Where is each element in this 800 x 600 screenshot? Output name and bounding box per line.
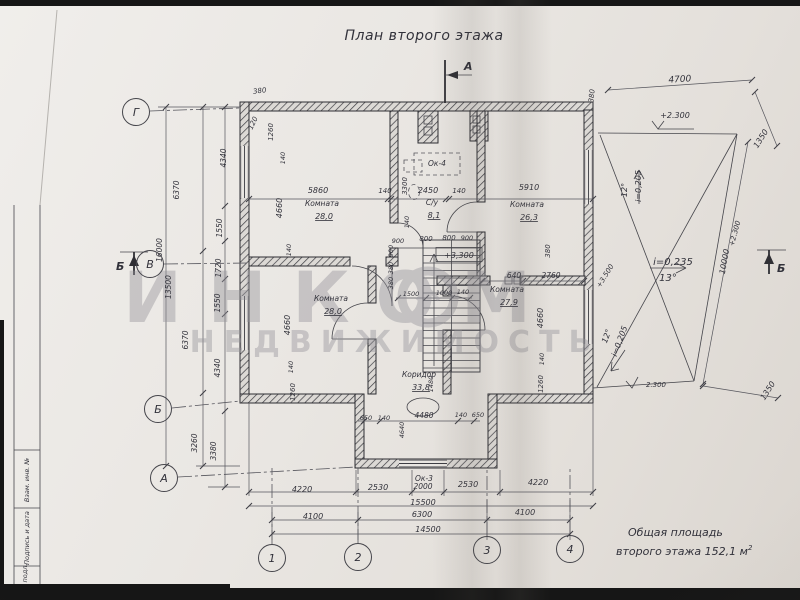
dimension-label: 4220 <box>292 485 312 494</box>
dimension-label: 6370 <box>181 330 190 349</box>
slope-label: i=0,205 <box>610 325 629 358</box>
titleblock-field-1: Взам. инв. № <box>23 458 31 502</box>
dimension-label: 380 <box>387 277 395 289</box>
dimension-label: 1350 <box>752 128 770 150</box>
room-name: Комната <box>490 285 524 294</box>
section-letter: Б <box>116 260 124 273</box>
dimension-label: 4480 <box>414 411 433 420</box>
window-mark-label: Ок-4 <box>428 159 446 168</box>
room-area: 28,0 <box>324 307 342 316</box>
dimension-label: 140 <box>378 187 392 195</box>
dimension-label: 140 <box>378 414 390 422</box>
dimension-label: 1500 <box>403 290 420 298</box>
dimension-label: 140 <box>452 187 466 195</box>
dimension-label: 4340 <box>219 148 228 167</box>
dimension-label: 380 <box>544 244 552 258</box>
dimension-label: 4100 <box>515 508 535 517</box>
dimension-label: 140 <box>403 216 411 228</box>
room-area: 8,1 <box>428 211 441 220</box>
dimension-label: 140 <box>279 152 287 164</box>
watermark: ИНКОМ НЕДВИЖИМОСТЬ <box>123 257 600 360</box>
dimension-label: 2000 <box>413 482 432 491</box>
dimension-label: 1550 <box>215 218 224 237</box>
room-name: Комната <box>314 294 348 303</box>
dimension-label: 380 <box>587 88 596 103</box>
dimension-label: 3380 <box>209 441 218 460</box>
dimension-label: 3260 <box>190 433 199 452</box>
dimension-label: 380 <box>387 262 395 274</box>
dimension-label: 1720 <box>214 258 223 277</box>
dimension-label: 2530 <box>458 480 478 489</box>
slope-label: 12° <box>620 183 629 197</box>
dimension-label: 900 <box>387 245 395 257</box>
dimension-label: 2760 <box>541 271 560 280</box>
dimension-label: 1260 <box>289 383 297 401</box>
dimension-label: 3300 <box>401 177 409 195</box>
room-name: С/у <box>426 198 439 207</box>
level-mark: +3.500 <box>595 262 616 289</box>
axis-bubble-label: Г <box>133 106 140 119</box>
dimension-label: 5860 <box>308 186 328 195</box>
slope-label: i=0,205 <box>634 170 643 202</box>
dimension-label: 15500 <box>410 498 435 507</box>
axis-bubble-label: 1 <box>269 552 276 565</box>
scanned-floor-plan-photo: ИНКОМ НЕДВИЖИМОСТЬ План второго этажа Об… <box>0 0 800 600</box>
level-mark: +3,300 <box>444 251 474 260</box>
room-name: Комната <box>305 199 339 208</box>
dimension-label: 4340 <box>213 358 222 377</box>
axis-bubble-label: 4 <box>567 543 574 556</box>
drawing-sheet: ИНКОМ НЕДВИЖИМОСТЬ План второго этажа Об… <box>0 0 800 600</box>
dimension-label: 1260 <box>267 123 275 141</box>
dimension-label: 4660 <box>536 308 545 328</box>
axis-bubble-label: 2 <box>355 551 362 564</box>
room-area: 27,9 <box>500 298 518 307</box>
level-mark: +2.300 <box>728 219 743 247</box>
axis-bubble-label: В <box>146 258 154 271</box>
dimension-label: 800 <box>419 235 433 243</box>
room-area: 33,8 <box>412 383 430 392</box>
dimension-line <box>745 139 751 145</box>
level-mark: +2.300 <box>660 111 690 120</box>
dimension-label: 2450 <box>418 186 438 195</box>
total-area-line1: Общая площадь <box>628 526 723 539</box>
axis-bubble-label: 3 <box>484 544 491 557</box>
axis-centerline <box>178 467 356 477</box>
dimension-label: 6300 <box>412 510 432 519</box>
titleblock-field-2: Подпись и дата <box>23 511 31 565</box>
dimension-label: 1000 <box>436 289 453 297</box>
axis-bubble-label: А <box>159 472 168 485</box>
dimension-label: 1550 <box>213 293 222 312</box>
dimension-label: 4660 <box>283 315 292 335</box>
dimension-label: 1260 <box>537 375 545 393</box>
axis-centerline <box>172 401 240 408</box>
room-area: 26,3 <box>520 213 538 222</box>
dimension-label: 900 <box>392 237 404 245</box>
section-letter: Б <box>777 262 785 275</box>
dimension-label: 900 <box>461 234 473 242</box>
total-area-superscript: 2 <box>748 544 753 552</box>
dimension-label: 140 <box>455 411 467 419</box>
room-name: Комната <box>510 200 544 209</box>
dimension-label: 640 <box>507 271 522 280</box>
drawing-title: План второго этажа <box>344 28 503 44</box>
total-area-value: второго этажа 152,1 м <box>616 545 748 558</box>
dimension-label: 4640 <box>398 422 406 439</box>
dimension-label: 380 <box>253 86 268 96</box>
dimension-label: 6370 <box>172 180 181 199</box>
dimension-label: 14500 <box>415 525 440 534</box>
dimension-label: 140 <box>457 288 469 296</box>
dimension-label: 650 <box>360 414 372 422</box>
dimension-label: 4100 <box>303 512 323 521</box>
slope-label: 13° <box>659 273 677 284</box>
dimension-label: 1350 <box>759 380 777 402</box>
axis-bubble-label: Б <box>154 403 162 416</box>
total-area-line2: второго этажа 152,1 м2 <box>616 544 753 558</box>
room-name: Коридор <box>402 370 436 379</box>
level-mark: 2.300 <box>646 381 667 389</box>
window-mark-label: Ок-3 <box>415 474 433 483</box>
room-area: 28,0 <box>315 212 333 221</box>
dimension-label: 13500 <box>164 275 173 299</box>
title-block <box>14 10 57 600</box>
dimension-label: 4660 <box>275 198 284 218</box>
slope-label: 12° <box>600 328 613 344</box>
dimension-label: 800 <box>442 234 456 242</box>
dimension-label: 4700 <box>668 74 692 86</box>
dimension-line <box>752 89 758 95</box>
dimension-label: 5910 <box>519 183 539 192</box>
dimension-label: 650 <box>472 411 484 419</box>
dimension-label: 140 <box>287 361 295 373</box>
dimension-label: 2530 <box>368 483 388 492</box>
dimension-label: 10000 <box>718 248 731 275</box>
dimension-line <box>774 143 780 149</box>
dimension-label: 140 <box>538 353 546 365</box>
section-letter: А <box>463 60 473 73</box>
dimension-label: 140 <box>285 244 293 256</box>
slope-label: i=0,235 <box>653 257 693 268</box>
dimension-label: 4220 <box>528 478 548 487</box>
